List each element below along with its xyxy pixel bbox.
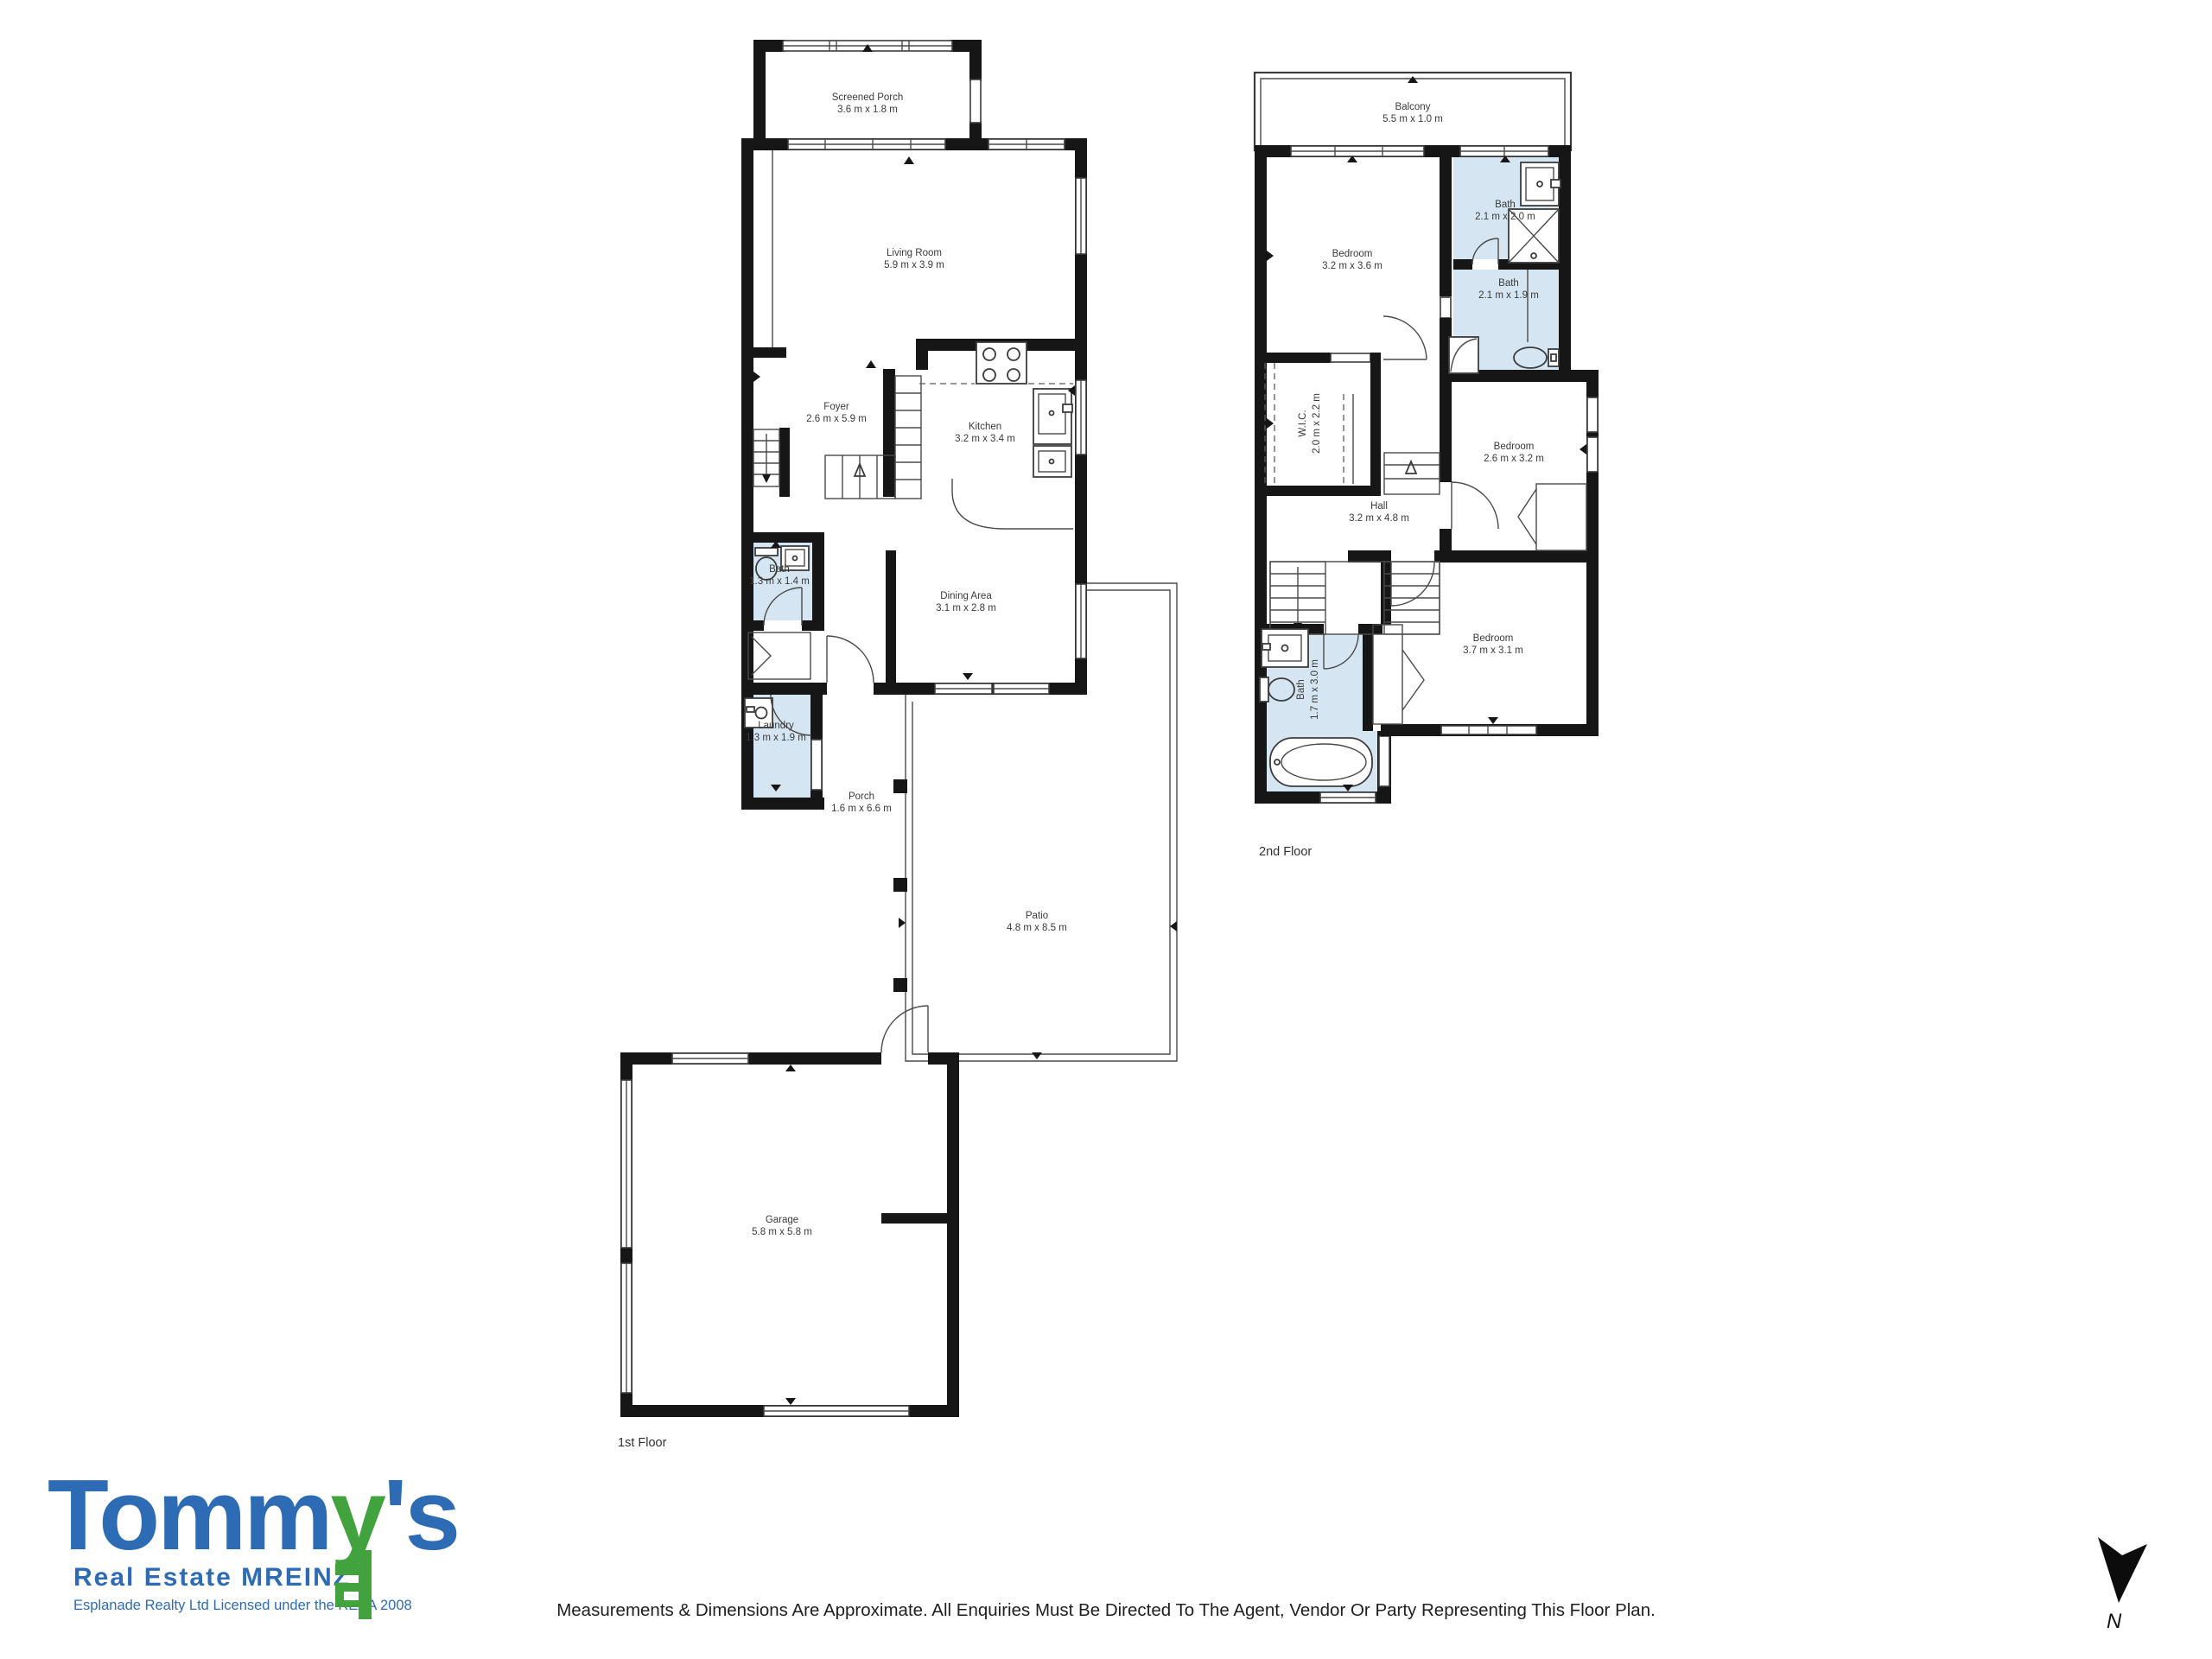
room-dims-garage: 5.8 m x 5.8 m — [752, 1227, 812, 1237]
room-label-screened-porch: Screened Porch — [832, 92, 903, 103]
disclaimer-text: Measurements & Dimensions Are Approximat… — [0, 1600, 2212, 1621]
floor-plan-svg: Screened Porch 3.6 m x 1.8 m Living Room… — [0, 0, 2212, 1659]
room-dims-foyer: 2.6 m x 5.9 m — [806, 414, 867, 424]
staircase-basement — [753, 429, 779, 486]
room-label-bath-1st: Bath — [769, 564, 790, 575]
room-dims-living-room: 5.9 m x 3.9 m — [884, 260, 944, 270]
bedroom3-door — [1391, 563, 1434, 606]
patio-outline — [906, 583, 1177, 1061]
kitchen-sink-icon — [1033, 389, 1072, 477]
room-dims-wic: 2.0 m x 2.2 m — [1312, 393, 1322, 454]
bathtub-icon — [1270, 738, 1372, 786]
bedroom2-closet — [1518, 484, 1586, 550]
second-floor-plan: Balcony 5.5 m x 1.0 m Bedroom 3.2 m x 3.… — [1255, 73, 1599, 859]
room-dims-bath-1st: 1.3 m x 1.4 m — [749, 576, 810, 587]
closet-bifold — [748, 632, 810, 679]
room-dims-balcony: 5.5 m x 1.0 m — [1382, 114, 1443, 124]
bedroom2-door — [1452, 482, 1498, 529]
room-label-balcony: Balcony — [1395, 102, 1431, 112]
room-label-porch: Porch — [849, 791, 874, 802]
room-dims-bath-ensuite: 2.1 m x 2.0 m — [1475, 212, 1535, 222]
room-dims-patio: 4.8 m x 8.5 m — [1007, 923, 1067, 933]
room-dims-porch: 1.6 m x 6.6 m — [831, 804, 892, 814]
room-dims-bedroom-2: 2.6 m x 3.2 m — [1484, 454, 1544, 464]
bedroom3-closet — [1373, 625, 1424, 724]
room-label-bedroom-2: Bedroom — [1494, 442, 1535, 452]
room-dims-kitchen: 3.2 m x 3.4 m — [955, 434, 1015, 444]
room-label-wic: W.I.C. — [1298, 410, 1308, 436]
floor-label-1st: 1st Floor — [618, 1436, 667, 1450]
room-label-laundry: Laundry — [758, 721, 794, 731]
room-label-hall: Hall — [1370, 501, 1388, 512]
room-label-bedroom-3: Bedroom — [1473, 633, 1514, 644]
room-label-kitchen: Kitchen — [969, 422, 1001, 432]
room-label-dining-area: Dining Area — [940, 591, 992, 601]
room-dims-bath-2: 2.1 m x 1.9 m — [1478, 290, 1539, 301]
room-dims-bedroom-3: 3.7 m x 3.1 m — [1463, 645, 1523, 656]
room-label-foyer: Foyer — [823, 402, 849, 412]
logo-part-3: 's — [384, 1459, 458, 1571]
room-dims-laundry: 1.3 m x 1.9 m — [746, 733, 806, 743]
wic-closet-rods — [1265, 363, 1353, 484]
room-dims-screened-porch: 3.6 m x 1.8 m — [837, 105, 898, 115]
room-label-bath-3: Bath — [1296, 679, 1306, 700]
logo-wordmark: Tommy's — [48, 1474, 462, 1556]
stove-icon — [976, 342, 1027, 384]
bedroom1-door — [1383, 316, 1427, 359]
room-dims-bath-3: 1.7 m x 3.0 m — [1310, 659, 1320, 720]
room-label-living-room: Living Room — [887, 248, 942, 258]
staircase-foyer — [825, 376, 921, 499]
logo-part-1: Tomm — [48, 1459, 330, 1571]
room-label-garage: Garage — [766, 1215, 798, 1225]
vanity-sink-icon — [1521, 162, 1560, 206]
entry-door — [827, 636, 874, 683]
agency-logo: Tommy's Real Estate MREINZ Esplanade Rea… — [48, 1474, 462, 1614]
first-floor-plan: Screened Porch 3.6 m x 1.8 m Living Room… — [618, 40, 1177, 1450]
room-label-bath-ensuite: Bath — [1495, 200, 1516, 210]
vanity-sink-icon-bath3 — [1262, 629, 1308, 667]
staircase-hall — [1270, 453, 1440, 634]
room-dims-bedroom-1: 3.2 m x 3.6 m — [1322, 261, 1382, 271]
room-label-patio: Patio — [1026, 911, 1048, 921]
room-dims-hall: 3.2 m x 4.8 m — [1349, 513, 1409, 524]
room-label-bath-2: Bath — [1498, 278, 1519, 289]
corner-shower-icon — [1449, 337, 1478, 373]
room-dims-dining-area: 3.1 m x 2.8 m — [936, 603, 996, 613]
room-label-bedroom-1: Bedroom — [1332, 249, 1373, 259]
floor-label-2nd: 2nd Floor — [1259, 845, 1312, 859]
floorplan-page: Screened Porch 3.6 m x 1.8 m Living Room… — [0, 0, 2212, 1659]
